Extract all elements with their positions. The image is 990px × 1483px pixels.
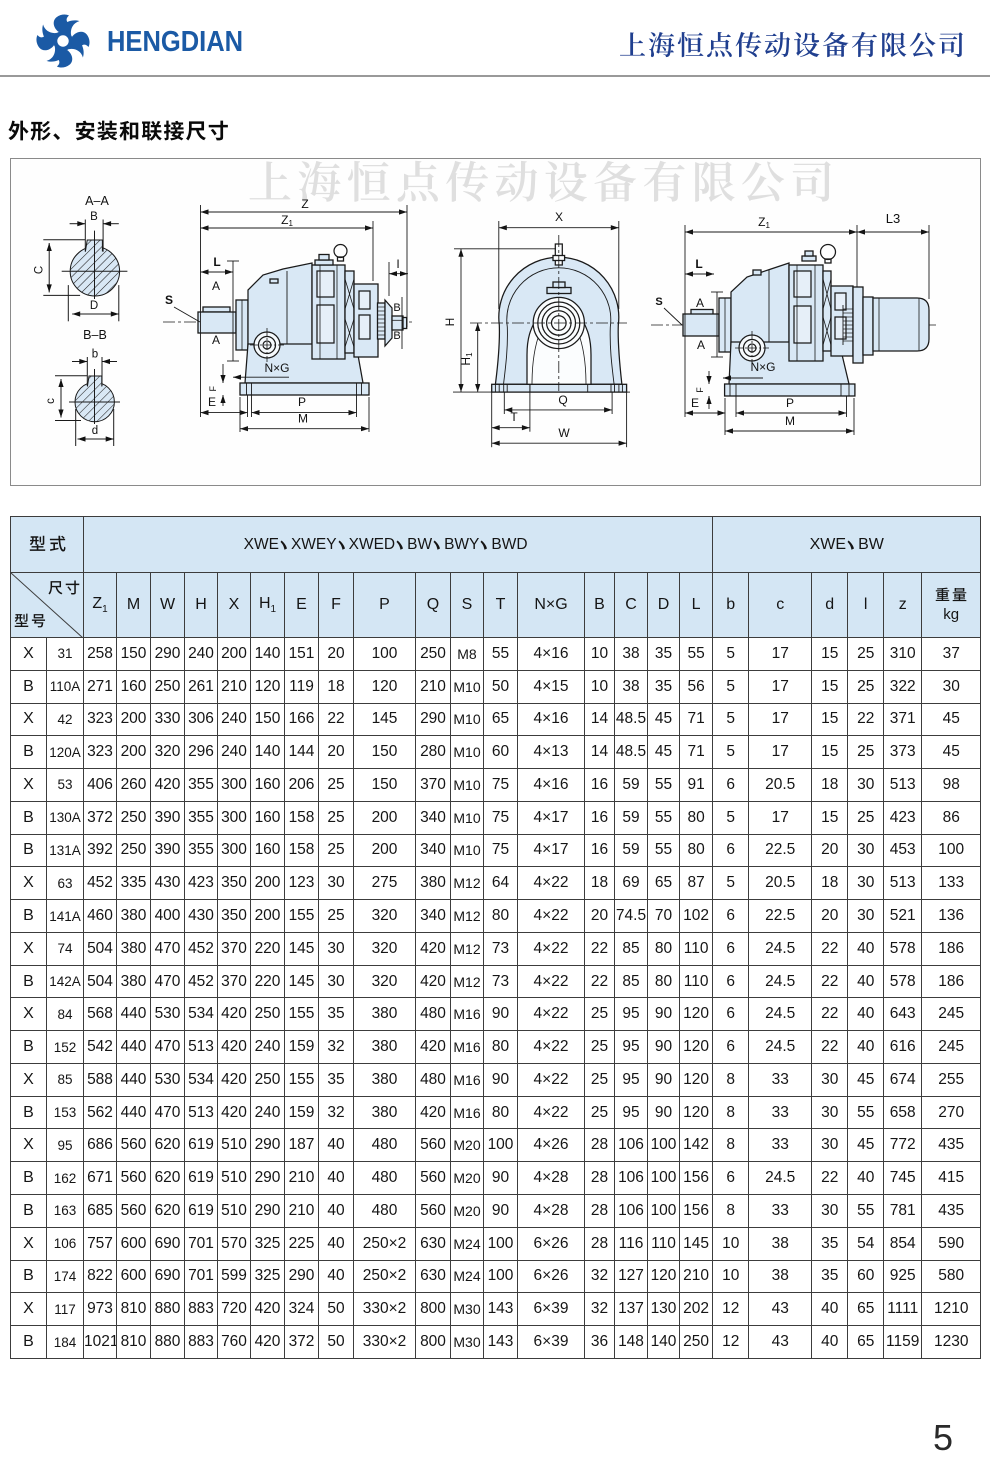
svg-text:N×G: N×G — [264, 361, 289, 375]
svg-text:P: P — [298, 395, 306, 409]
svg-text:d: d — [92, 425, 98, 437]
svg-text:P: P — [786, 396, 794, 410]
svg-text:S: S — [655, 296, 662, 308]
svg-text:Z1: Z1 — [281, 213, 293, 228]
svg-text:E: E — [208, 395, 216, 409]
svg-text:F: F — [695, 387, 705, 393]
svg-text:c: c — [45, 398, 57, 404]
svg-text:T: T — [510, 410, 518, 424]
svg-text:A: A — [212, 333, 220, 347]
svg-text:B: B — [393, 330, 400, 342]
svg-text:M: M — [785, 414, 795, 428]
svg-text:N×G: N×G — [750, 360, 775, 374]
svg-text:S: S — [165, 293, 173, 307]
svg-text:F: F — [208, 385, 218, 391]
svg-text:Z1: Z1 — [758, 215, 770, 230]
svg-text:A: A — [697, 338, 705, 352]
svg-text:b: b — [92, 349, 98, 361]
svg-text:B: B — [393, 302, 400, 314]
svg-text:A–A: A–A — [85, 194, 109, 208]
svg-text:Z: Z — [301, 197, 308, 211]
svg-text:L: L — [213, 255, 220, 269]
svg-text:L: L — [695, 257, 702, 271]
svg-text:W: W — [558, 426, 570, 440]
svg-text:Q: Q — [558, 393, 567, 407]
svg-text:I: I — [396, 257, 399, 271]
svg-text:A: A — [212, 279, 220, 293]
svg-text:L3: L3 — [886, 211, 900, 226]
svg-text:B–B: B–B — [83, 328, 107, 342]
svg-text:D: D — [90, 300, 98, 312]
svg-text:E: E — [691, 396, 699, 410]
svg-text:X: X — [555, 210, 563, 224]
svg-text:A: A — [696, 296, 704, 310]
svg-text:H: H — [443, 318, 457, 327]
svg-text:B: B — [90, 211, 98, 223]
svg-text:C: C — [34, 266, 46, 274]
svg-text:M: M — [298, 412, 308, 426]
